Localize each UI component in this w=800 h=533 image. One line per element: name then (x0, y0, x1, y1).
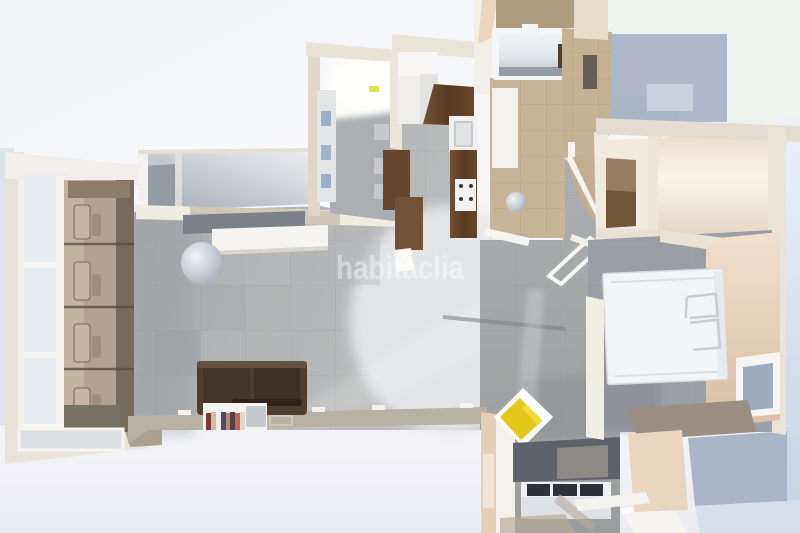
svg-text:habitaclia: habitaclia (336, 249, 465, 286)
